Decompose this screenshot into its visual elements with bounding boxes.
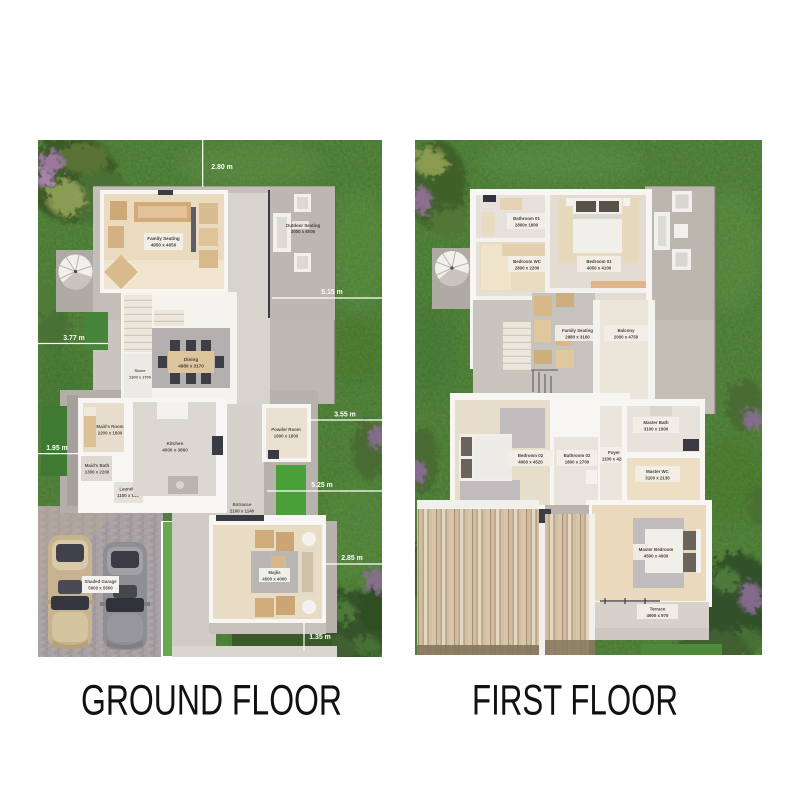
svg-text:Bedroom 01: Bedroom 01 [586,259,612,264]
svg-text:Balcony: Balcony [617,328,635,333]
svg-text:Bathroom 01: Bathroom 01 [513,216,540,221]
svg-text:GROUND FLOOR: GROUND FLOOR [81,678,342,725]
svg-text:Stove: Stove [135,368,147,373]
svg-text:Family Seating: Family Seating [562,328,593,333]
svg-text:Bedroom WC: Bedroom WC [513,259,542,264]
svg-text:3100 x 2130: 3100 x 2130 [645,476,670,481]
svg-text:Maid's Bath: Maid's Bath [85,463,110,468]
svg-text:Dining: Dining [184,357,198,362]
svg-text:Master Bedroom: Master Bedroom [639,547,674,552]
svg-text:Kitchen: Kitchen [167,441,184,446]
svg-text:Powder Room: Powder Room [271,427,301,432]
svg-text:3100 x 1900: 3100 x 1900 [644,427,669,432]
svg-text:3000 x 6000: 3000 x 6000 [291,229,316,234]
svg-text:4000 x 4520: 4000 x 4520 [518,460,543,465]
svg-text:4050 x 4100: 4050 x 4100 [587,266,612,271]
svg-text:2.85 m: 2.85 m [341,555,362,562]
svg-text:Foyer: Foyer [608,450,620,455]
svg-text:5.15 m: 5.15 m [321,289,342,296]
svg-text:2980 x 3160: 2980 x 3160 [565,335,590,340]
svg-text:1100 x 1700: 1100 x 1700 [129,375,152,380]
svg-text:1800 x 2700: 1800 x 2700 [565,460,590,465]
svg-text:Bedroom 02: Bedroom 02 [518,453,544,458]
svg-text:Terrace: Terrace [650,607,666,612]
svg-text:Maid's Room: Maid's Room [96,424,123,429]
svg-text:4980 x 3170: 4980 x 3170 [178,364,204,369]
svg-text:1600 x 1800: 1600 x 1800 [274,434,299,439]
svg-text:2000 x 4750: 2000 x 4750 [614,335,639,340]
svg-text:Entrance: Entrance [233,502,252,507]
svg-text:Family Seating: Family Seating [147,236,180,241]
svg-text:Master Bath: Master Bath [643,420,668,425]
svg-text:3.77 m: 3.77 m [63,335,84,342]
svg-text:Shaded Garage: Shaded Garage [84,579,117,584]
svg-text:4000 x 3860: 4000 x 3860 [162,448,188,453]
svg-text:2100 x 1140: 2100 x 1140 [230,509,255,514]
svg-text:Outdoor Seating: Outdoor Seating [286,223,321,228]
svg-text:2800 x 2200: 2800 x 2200 [515,266,540,271]
svg-text:5000 x 5500: 5000 x 5500 [88,586,113,591]
svg-text:Majlis: Majlis [268,570,281,575]
svg-text:5.25 m: 5.25 m [311,482,332,489]
svg-text:FIRST FLOOR: FIRST FLOOR [472,678,678,725]
svg-text:4950 x 4050: 4950 x 4050 [151,243,177,248]
svg-text:Master WC: Master WC [646,469,670,474]
svg-text:2200 x 1800: 2200 x 1800 [98,431,123,436]
svg-text:Bathroom 02: Bathroom 02 [564,453,591,458]
svg-text:2800x 1800: 2800x 1800 [515,223,539,228]
svg-text:4900 x 970: 4900 x 970 [647,613,670,618]
svg-text:3.55 m: 3.55 m [334,412,355,419]
svg-text:1.95 m: 1.95 m [46,445,67,452]
svg-text:4500 x 4000: 4500 x 4000 [644,554,669,559]
svg-text:1300 x 2200: 1300 x 2200 [85,470,110,475]
svg-text:2.80 m: 2.80 m [211,164,232,171]
svg-text:1.35 m: 1.35 m [309,634,330,641]
svg-text:4500 x 4000: 4500 x 4000 [262,577,287,582]
